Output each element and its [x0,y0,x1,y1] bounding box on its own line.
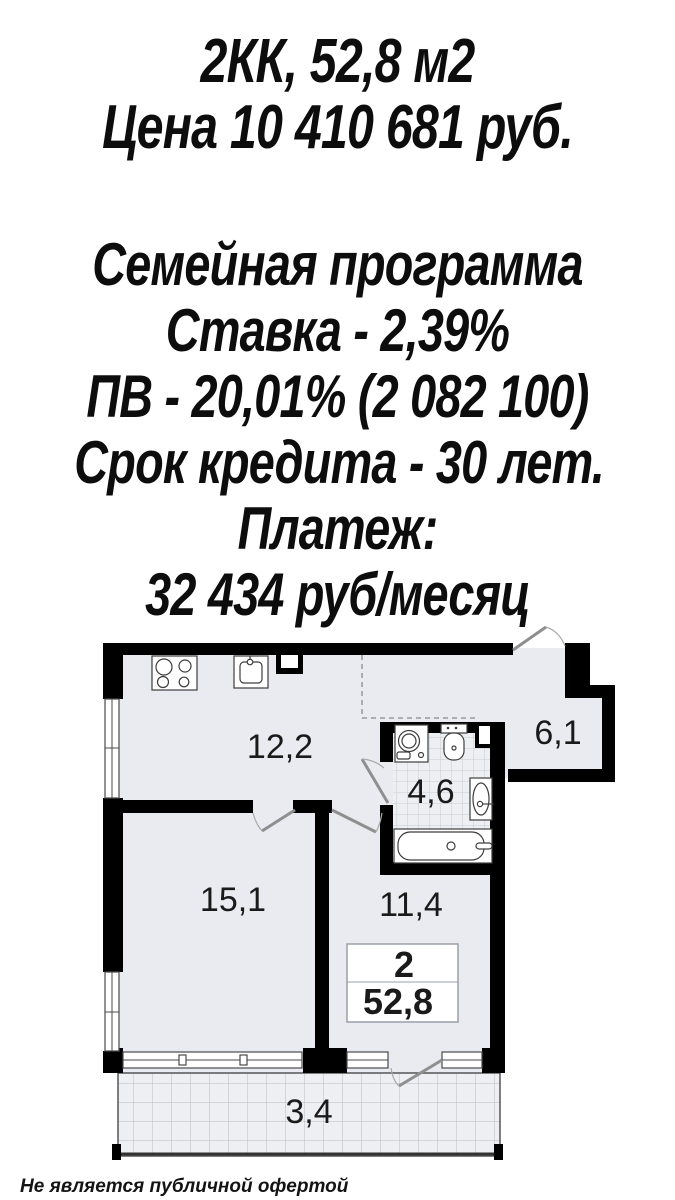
window-living-left [105,972,119,1051]
room-label-bedroom: 11,4 [379,886,443,924]
floor-plan: 2 52,8 12,2 6,1 4,6 15,1 11,4 3,4 [0,620,675,1180]
basin-icon [470,778,494,820]
offer-payment-value: 32 434 руб/месяц [74,562,601,628]
room-label-hall: 6,1 [534,714,581,752]
apartment-type-area: 2КК, 52,8 м2 [74,29,601,95]
offer-program: Семейная программа [74,232,601,298]
window-living-bottom [123,1052,302,1068]
wall-shaft [276,655,303,674]
toilet-icon [441,724,467,760]
price-line: Цена 10 410 681 руб. [74,95,601,161]
mortgage-offer: Семейная программа Ставка - 2,39% ПВ - 2… [74,232,601,628]
stove-icon [152,656,197,690]
washing-machine-icon [395,725,428,762]
rooms-count-label: 2 [394,944,414,985]
room-label-kitchen-living: 12,2 [247,728,313,766]
kitchen-sink-icon [234,656,268,688]
bathtub-icon [394,829,492,863]
listing-flyer: 2КК, 52,8 м2 Цена 10 410 681 руб. Семейн… [0,0,675,1200]
window-bedroom-bottom-left [347,1052,388,1068]
area-info-box: 2 52,8 [347,944,458,1022]
entrance-door [513,627,565,650]
room-label-balcony: 3,4 [285,1093,332,1131]
listing-header: 2КК, 52,8 м2 Цена 10 410 681 руб. [74,29,601,161]
offer-term: Срок кредита - 30 лет. [74,430,601,496]
total-area-label: 52,8 [363,981,433,1022]
room-label-bathroom: 4,6 [407,773,454,811]
offer-downpayment: ПВ - 20,01% (2 082 100) [74,364,601,430]
offer-payment-title: Платеж: [74,496,601,562]
disclaimer-text: Не является публичной офертой [20,1176,348,1198]
window-kitchen-left [105,699,119,798]
room-label-living: 15,1 [200,881,266,919]
window-bedroom-bottom-right [442,1052,482,1068]
offer-rate: Ставка - 2,39% [74,298,601,364]
